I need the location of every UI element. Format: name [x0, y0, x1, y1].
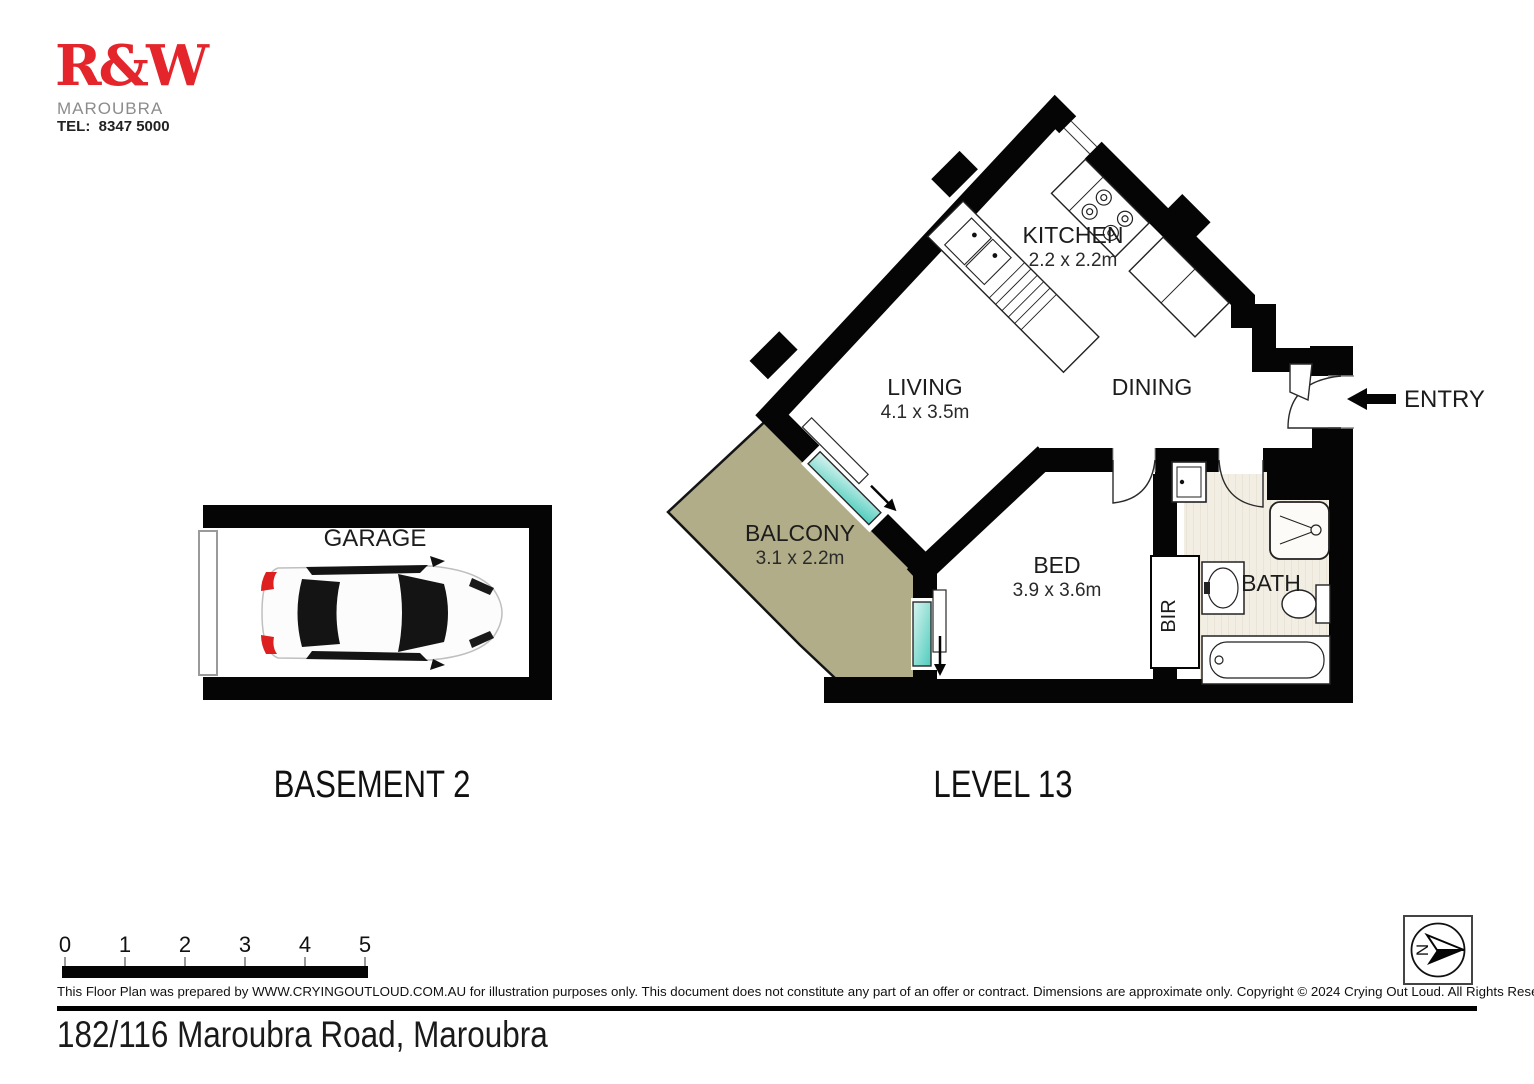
car-mirror-top [430, 556, 445, 567]
compass: N [1404, 916, 1472, 984]
garage-wall-bottom [203, 677, 552, 700]
floorplan-page: R&W MAROUBRA TEL: 8347 5000 [0, 0, 1534, 1084]
divider-wall-lower [1153, 666, 1177, 694]
scale-tick-2: 2 [179, 932, 191, 957]
bed-slider [911, 590, 946, 676]
toilet-cistern [1316, 585, 1330, 623]
shower [1270, 502, 1329, 559]
bed-dims: 3.9 x 3.6m [1013, 580, 1102, 601]
entry-label: ENTRY [1404, 386, 1485, 413]
bed-door-opening [1113, 446, 1155, 474]
hall-basin-tap [1180, 480, 1184, 484]
hall-basin [1172, 462, 1206, 502]
scale-tick-marks [65, 957, 365, 967]
living-dims: 4.1 x 3.5m [881, 402, 970, 423]
scale-tick-5: 5 [359, 932, 371, 957]
car-mirror-bottom [430, 659, 445, 670]
apartment-plan: KITCHEN 2.2 x 2.2m LIVING 4.1 x 3.5m DIN… [668, 61, 1485, 703]
compass-north-letter: N [1413, 944, 1432, 956]
bed-slider-glass [913, 602, 931, 666]
scale-tick-1: 1 [119, 932, 131, 957]
scale-tick-0: 0 [59, 932, 71, 957]
living-label: LIVING [887, 374, 962, 400]
scale-bar-rule [62, 966, 368, 978]
bir-label: BIR [1158, 599, 1180, 632]
disclaimer-text: This Floor Plan was prepared by WWW.CRYI… [57, 984, 1477, 999]
footer-divider [57, 1006, 1477, 1011]
floorplan-drawing: GARAGE [0, 0, 1534, 1084]
scale-tick-4: 4 [299, 932, 311, 957]
bath-door-opening [1219, 446, 1263, 474]
bed-label: BED [1033, 552, 1080, 578]
wall-jog-left-2 [750, 331, 798, 379]
kitchen-label: KITCHEN [1023, 222, 1124, 248]
car-windshield [398, 574, 448, 652]
car-rear-window [298, 579, 341, 647]
garage-label: GARAGE [324, 525, 427, 552]
garage-door [199, 531, 217, 675]
level-title: LEVEL 13 [933, 764, 1072, 807]
entry-opening [1326, 376, 1356, 428]
kitchen-dims: 2.2 x 2.2m [1029, 250, 1118, 271]
entry-wall-upper [1310, 346, 1353, 376]
dining-label: DINING [1112, 374, 1193, 400]
bath-shower-wall [1267, 472, 1341, 500]
garage-plan: GARAGE [199, 505, 552, 700]
basement-title: BASEMENT 2 [274, 764, 471, 807]
entry-wall-lower [1312, 428, 1353, 472]
scale-tick-3: 3 [239, 932, 251, 957]
balcony-label: BALCONY [745, 520, 855, 546]
property-address: 182/116 Maroubra Road, Maroubra [57, 1014, 548, 1056]
bath-label: BATH [1241, 570, 1301, 596]
vanity-tap [1204, 582, 1210, 594]
scale-bar: 0 1 2 3 4 5 [59, 932, 371, 978]
entry-arrow-shaft [1365, 394, 1396, 404]
garage-wall-right [529, 505, 552, 700]
balcony-dims: 3.1 x 2.2m [756, 548, 845, 569]
car [261, 556, 502, 670]
